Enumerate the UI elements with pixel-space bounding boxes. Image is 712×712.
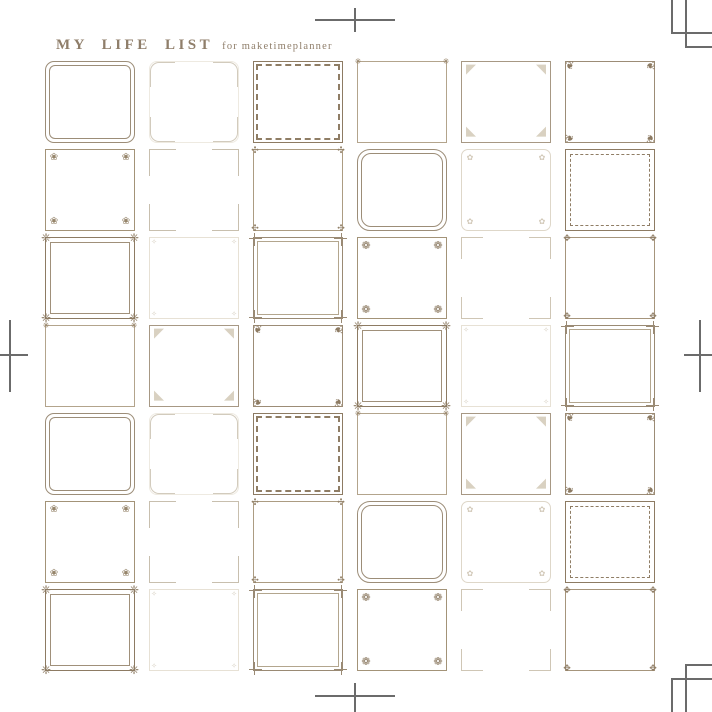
- corner-ornament-icon: [462, 502, 478, 518]
- frame-crossing-line-corners: [253, 589, 343, 671]
- frame-delicate-corner-brackets: [149, 501, 239, 583]
- corner-ornament-icon: [38, 318, 54, 334]
- corner-ornament-icon: [146, 234, 162, 250]
- corner-ornament-icon: [533, 125, 549, 141]
- corner-ornament-icon: [46, 150, 62, 166]
- corner-ornament-icon: [46, 502, 62, 518]
- frame-floral-curl-corners: [253, 325, 343, 407]
- frame-fan-flower-corners: [45, 501, 135, 583]
- corner-ornament-icon: [438, 406, 454, 422]
- corner-ornament-icon: [463, 63, 479, 79]
- corner-ornament-icon: [534, 566, 550, 582]
- frame-ornate-flourish: [45, 589, 135, 671]
- corner-ornament-icon: [559, 661, 575, 677]
- corner-ornament-icon: [438, 54, 454, 70]
- corner-ornament-icon: [149, 149, 176, 176]
- crop-mark-top-cross-v: [354, 8, 356, 32]
- corner-ornament-icon: [642, 410, 658, 426]
- corner-ornament-icon: [149, 501, 176, 528]
- corner-ornament-icon: [461, 589, 483, 611]
- corner-ornament-icon: [330, 322, 346, 338]
- frame-faint-floral-corners: [461, 149, 551, 231]
- corner-ornament-icon: [438, 54, 454, 70]
- crop-mark-topright-inner-v: [685, 0, 687, 48]
- corner-ornament-icon: [358, 302, 374, 318]
- frame-ornate-flourish: [357, 325, 447, 407]
- corner-ornament-icon: [333, 573, 349, 589]
- corner-ornament-icon: [221, 389, 237, 405]
- frame-rounded-double: [357, 149, 447, 231]
- corner-ornament-icon: [462, 150, 478, 166]
- corner-ornament-icon: [529, 589, 551, 611]
- crop-mark-bottomright-outer-v: [671, 678, 673, 712]
- frame-lace-triangle-corners: [461, 61, 551, 143]
- frame-floral-curl-corners: [565, 413, 655, 495]
- corner-ornament-icon: [212, 501, 239, 528]
- frame-inner-border: [362, 330, 442, 402]
- corner-ornament-icon: [118, 214, 134, 230]
- frame-inner-border: [570, 154, 650, 226]
- crop-mark-left-cross-h: [0, 354, 28, 356]
- frame-crossing-line-corners: [565, 325, 655, 407]
- frame-inner-border: [49, 65, 131, 139]
- corner-ornament-icon: [151, 327, 167, 343]
- corner-ornament-icon: [461, 297, 483, 319]
- frame-rounded-chamfer-double: [45, 61, 135, 143]
- corner-ornament-icon: [213, 62, 238, 87]
- corner-ornament-icon: [562, 410, 578, 426]
- crop-mark-topright-inner-h: [685, 46, 712, 48]
- crop-mark-right-cross-h: [684, 354, 712, 356]
- frame-rounded-chamfer-double: [45, 413, 135, 495]
- corner-ornament-icon: [146, 306, 162, 322]
- corner-ornament-icon: [226, 658, 242, 674]
- sheet-header: MY LIFE LISTfor maketimeplanner: [56, 36, 333, 54]
- corner-ornament-icon: [562, 58, 578, 74]
- corner-ornament-icon: [221, 327, 237, 343]
- corner-ornament-icon: [350, 406, 366, 422]
- corner-ornament-icon: [358, 238, 374, 254]
- corner-ornament-icon: [562, 482, 578, 498]
- crop-mark-left-cross-v: [9, 320, 11, 392]
- frame-fan-corners-bold: [357, 589, 447, 671]
- frame-thin-star-corners: [357, 61, 447, 143]
- crop-mark-topright-outer-v: [671, 0, 673, 34]
- corner-ornament-icon: [247, 221, 263, 237]
- frame-inner-border: [257, 241, 339, 315]
- corner-ornament-icon: [430, 654, 446, 670]
- frame-thin-star-corners: [45, 325, 135, 407]
- corner-ornament-icon: [213, 117, 238, 142]
- corner-ornament-icon: [461, 649, 483, 671]
- crop-mark-bottom-cross-v: [354, 683, 356, 712]
- frame-floral-curl-corners: [565, 61, 655, 143]
- corner-ornament-icon: [463, 125, 479, 141]
- corner-ornament-icon: [642, 130, 658, 146]
- frame-faint-floral-corners: [461, 501, 551, 583]
- frame-crossing-line-corners: [253, 237, 343, 319]
- page-title: MY LIFE LIST: [56, 37, 213, 53]
- corner-ornament-icon: [126, 318, 142, 334]
- frame-solid-dashed-inset: [565, 149, 655, 231]
- frame-rounded-double: [357, 501, 447, 583]
- corner-ornament-icon: [534, 150, 550, 166]
- frame-lace-triangle-corners: [149, 325, 239, 407]
- corner-ornament-icon: [118, 502, 134, 518]
- corner-ornament-icon: [430, 238, 446, 254]
- corner-ornament-icon: [458, 394, 474, 410]
- corner-ornament-icon: [533, 415, 549, 431]
- frame-inner-border: [569, 329, 651, 403]
- corner-ornament-icon: [151, 389, 167, 405]
- frame-dashed-double-dark: [253, 413, 343, 495]
- corner-ornament-icon: [559, 231, 575, 247]
- frame-inner-border: [49, 417, 131, 491]
- frame-faint-dot-corners: [461, 325, 551, 407]
- corner-ornament-icon: [46, 214, 62, 230]
- crop-mark-bottomright-inner-v: [685, 664, 687, 712]
- corner-ornament-icon: [430, 302, 446, 318]
- frame-leaf-tick-corners: [565, 237, 655, 319]
- corner-ornament-icon: [333, 221, 349, 237]
- frame-dashed-double-dark: [253, 61, 343, 143]
- corner-ornament-icon: [645, 231, 661, 247]
- corner-ornament-icon: [529, 649, 551, 671]
- corner-ornament-icon: [226, 234, 242, 250]
- corner-ornament-icon: [645, 661, 661, 677]
- corner-ornament-icon: [38, 318, 54, 334]
- corner-ornament-icon: [149, 556, 176, 583]
- corner-ornament-icon: [358, 654, 374, 670]
- corner-ornament-icon: [461, 237, 483, 259]
- corner-ornament-icon: [247, 495, 263, 511]
- corner-ornament-icon: [146, 586, 162, 602]
- corner-ornament-icon: [213, 469, 238, 494]
- crop-mark-bottomright-outer-h: [671, 678, 712, 680]
- frame-leaf-tick-corners: [565, 589, 655, 671]
- corner-ornament-icon: [212, 556, 239, 583]
- frame-inner-border: [50, 242, 130, 314]
- frame-inner-border: [256, 416, 340, 492]
- frame-inner-border: [570, 506, 650, 578]
- corner-ornament-icon: [350, 54, 366, 70]
- frame-inner-border: [50, 594, 130, 666]
- corner-ornament-icon: [358, 590, 374, 606]
- corner-ornament-icon: [146, 658, 162, 674]
- corner-ornament-icon: [350, 406, 366, 422]
- frame-inner-border: [361, 505, 443, 579]
- corner-ornament-icon: [645, 309, 661, 325]
- frame-inner-border: [256, 64, 340, 140]
- corner-ornament-icon: [642, 482, 658, 498]
- corner-ornament-icon: [462, 566, 478, 582]
- frame-inner-border: [361, 153, 443, 227]
- corner-ornament-icon: [126, 318, 142, 334]
- corner-ornament-icon: [226, 586, 242, 602]
- corner-ornament-icon: [212, 204, 239, 231]
- frame-knot-corners: [253, 149, 343, 231]
- corner-ornament-icon: [534, 214, 550, 230]
- corner-ornament-icon: [529, 237, 551, 259]
- corner-ornament-icon: [559, 583, 575, 599]
- corner-ornament-icon: [562, 130, 578, 146]
- crop-mark-topright-outer-h: [671, 32, 712, 34]
- corner-ornament-icon: [333, 495, 349, 511]
- frame-light-corner-brackets: [149, 61, 239, 143]
- corner-ornament-icon: [538, 322, 554, 338]
- crop-mark-right-cross-v: [699, 320, 701, 392]
- frame-fan-flower-corners: [45, 149, 135, 231]
- frame-knot-corners: [253, 501, 343, 583]
- frame-faint-dot-corners: [149, 237, 239, 319]
- frame-light-brackets: [461, 589, 551, 671]
- sticker-sheet: MY LIFE LISTfor maketimeplanner: [0, 0, 712, 712]
- corner-ornament-icon: [430, 590, 446, 606]
- corner-ornament-icon: [533, 477, 549, 493]
- crop-mark-bottomright-inner-h: [685, 664, 712, 666]
- corner-ornament-icon: [534, 502, 550, 518]
- corner-ornament-icon: [118, 566, 134, 582]
- corner-ornament-icon: [212, 149, 239, 176]
- corner-ornament-icon: [645, 583, 661, 599]
- page-subtitle: for maketimeplanner: [222, 41, 333, 52]
- corner-ornament-icon: [462, 214, 478, 230]
- corner-ornament-icon: [350, 54, 366, 70]
- corner-ornament-icon: [150, 117, 175, 142]
- corner-ornament-icon: [226, 306, 242, 322]
- corner-ornament-icon: [150, 414, 175, 439]
- frame-solid-dashed-inset: [565, 501, 655, 583]
- frame-grid: [45, 61, 655, 671]
- corner-ornament-icon: [529, 297, 551, 319]
- corner-ornament-icon: [559, 309, 575, 325]
- frame-light-brackets: [461, 237, 551, 319]
- frame-faint-dot-corners: [149, 589, 239, 671]
- corner-ornament-icon: [149, 204, 176, 231]
- corner-ornament-icon: [46, 566, 62, 582]
- corner-ornament-icon: [538, 394, 554, 410]
- corner-ornament-icon: [250, 322, 266, 338]
- corner-ornament-icon: [642, 58, 658, 74]
- corner-ornament-icon: [150, 469, 175, 494]
- corner-ornament-icon: [247, 143, 263, 159]
- frame-light-corner-brackets: [149, 413, 239, 495]
- frame-thin-star-corners: [357, 413, 447, 495]
- corner-ornament-icon: [458, 322, 474, 338]
- corner-ornament-icon: [250, 394, 266, 410]
- corner-ornament-icon: [463, 415, 479, 431]
- frame-delicate-corner-brackets: [149, 149, 239, 231]
- corner-ornament-icon: [533, 63, 549, 79]
- corner-ornament-icon: [438, 406, 454, 422]
- frame-ornate-flourish: [45, 237, 135, 319]
- frame-lace-triangle-corners: [461, 413, 551, 495]
- corner-ornament-icon: [213, 414, 238, 439]
- corner-ornament-icon: [247, 573, 263, 589]
- corner-ornament-icon: [463, 477, 479, 493]
- frame-inner-border: [257, 593, 339, 667]
- corner-ornament-icon: [150, 62, 175, 87]
- frame-fan-corners-bold: [357, 237, 447, 319]
- corner-ornament-icon: [118, 150, 134, 166]
- corner-ornament-icon: [333, 143, 349, 159]
- corner-ornament-icon: [330, 394, 346, 410]
